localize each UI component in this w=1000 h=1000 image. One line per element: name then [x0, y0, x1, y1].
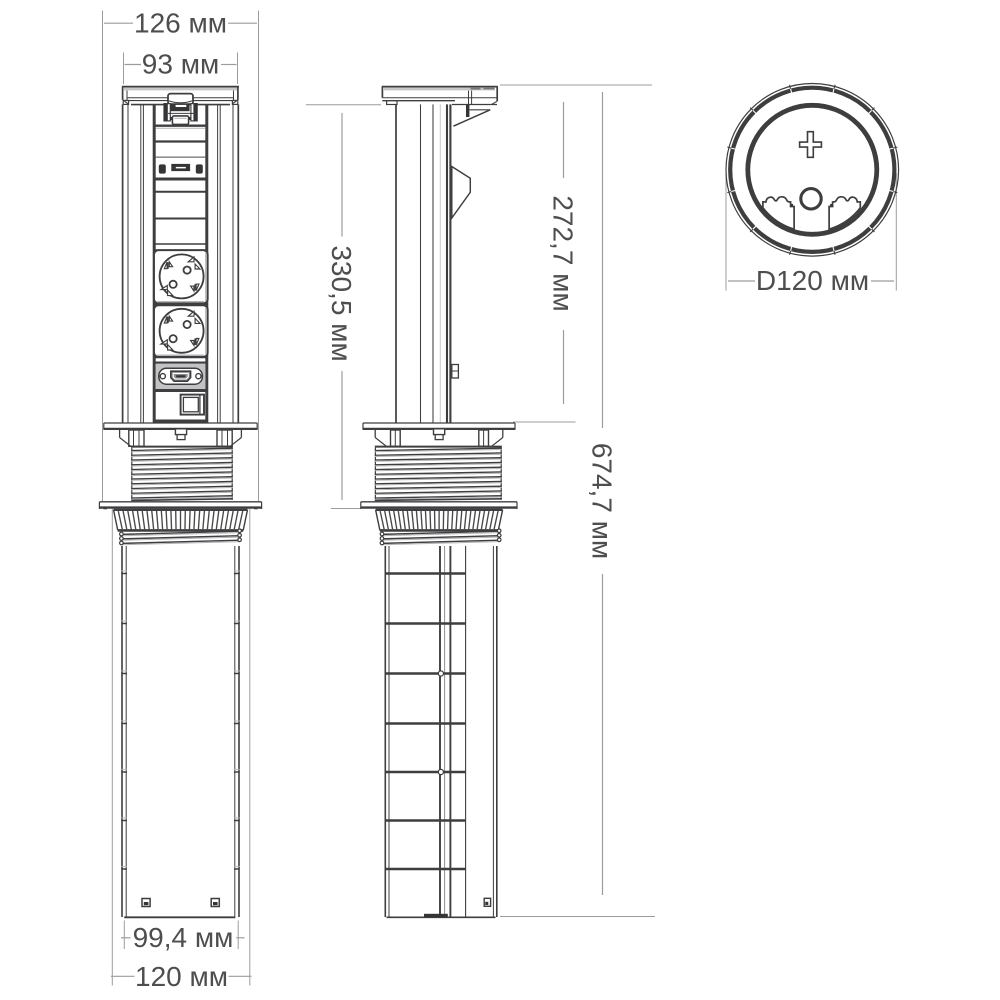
- svg-text:99,4 мм: 99,4 мм: [133, 922, 234, 953]
- svg-text:272,7 мм: 272,7 мм: [548, 195, 579, 311]
- svg-text:126 мм: 126 мм: [134, 7, 227, 38]
- svg-text:674,7 мм: 674,7 мм: [587, 443, 618, 559]
- svg-text:93 мм: 93 мм: [142, 49, 219, 80]
- svg-text:D120 мм: D120 мм: [756, 265, 869, 296]
- svg-text:120 мм: 120 мм: [135, 961, 228, 992]
- svg-text:330,5 мм: 330,5 мм: [326, 245, 357, 361]
